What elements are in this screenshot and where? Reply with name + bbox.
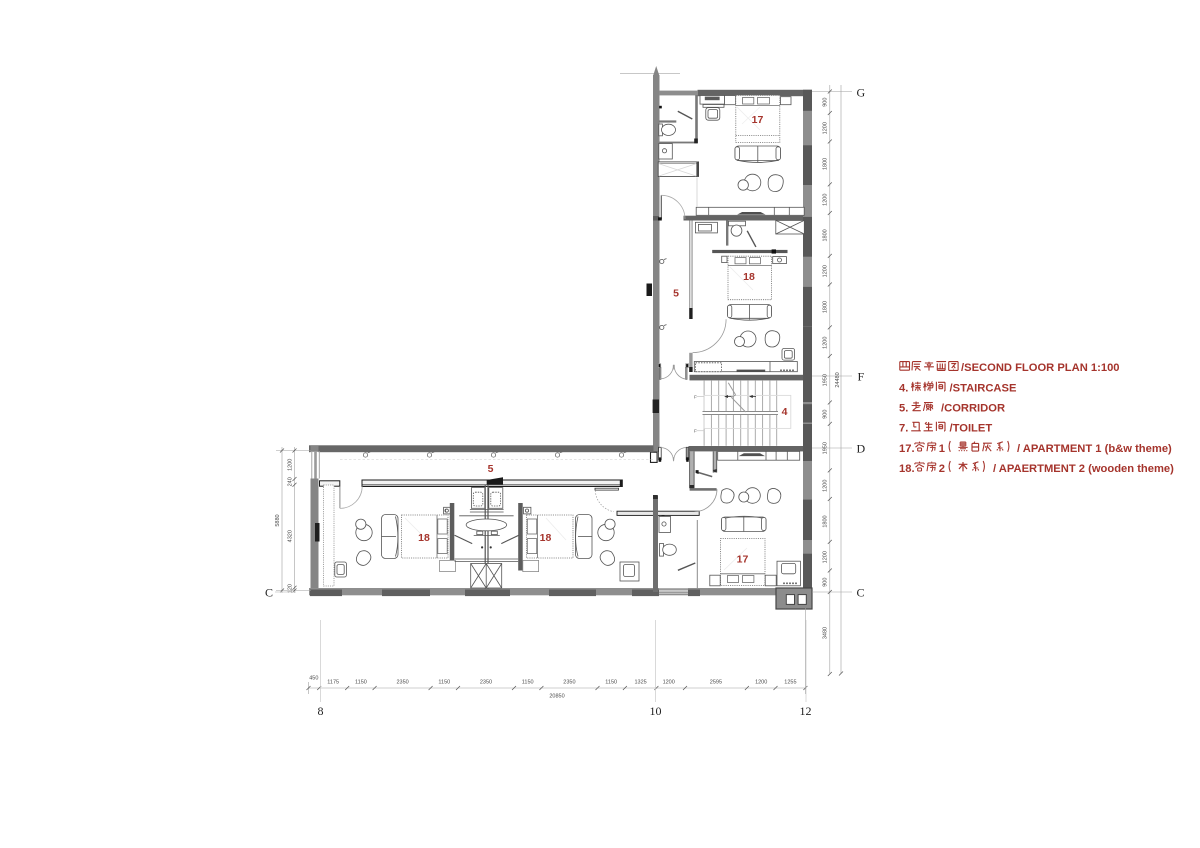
svg-text:17: 17 (752, 114, 764, 126)
svg-text:8: 8 (318, 704, 324, 718)
svg-text:1175: 1175 (327, 680, 339, 686)
svg-text:1200: 1200 (822, 265, 828, 277)
svg-text:5880: 5880 (275, 514, 281, 526)
svg-text:1200: 1200 (822, 337, 828, 349)
svg-text:900: 900 (822, 578, 828, 587)
svg-text:5: 5 (673, 288, 679, 300)
svg-text:18: 18 (540, 532, 552, 544)
svg-text:1800: 1800 (822, 301, 828, 313)
svg-text:F: F (858, 370, 865, 384)
svg-text:17.: 17. (899, 443, 915, 455)
svg-text:1950: 1950 (822, 442, 828, 454)
svg-text:2350: 2350 (480, 680, 492, 686)
svg-text:1150: 1150 (438, 680, 450, 686)
svg-text:C: C (265, 586, 273, 600)
svg-text:2595: 2595 (710, 680, 722, 686)
svg-text:18.: 18. (899, 463, 915, 475)
svg-text:5.: 5. (899, 403, 908, 415)
svg-text:1150: 1150 (522, 680, 534, 686)
svg-text:4.: 4. (899, 383, 908, 395)
svg-text:24480: 24480 (835, 372, 841, 387)
svg-text:1200: 1200 (822, 551, 828, 563)
svg-text:1800: 1800 (822, 515, 828, 527)
svg-text:1950: 1950 (822, 374, 828, 386)
svg-text:18: 18 (743, 271, 755, 283)
svg-text:18: 18 (418, 532, 430, 544)
svg-text:1325: 1325 (634, 680, 646, 686)
svg-text:/ APARTMENT 1 (b&w theme): / APARTMENT 1 (b&w theme) (1017, 443, 1172, 455)
svg-text:240: 240 (288, 477, 294, 486)
svg-text:1200: 1200 (288, 459, 294, 471)
svg-text:1: 1 (939, 443, 945, 455)
svg-text:4: 4 (782, 406, 788, 418)
svg-text:1150: 1150 (355, 680, 367, 686)
svg-text:F: F (694, 395, 697, 400)
svg-text:1200: 1200 (663, 680, 675, 686)
svg-text:900: 900 (822, 98, 828, 107)
svg-text:17: 17 (737, 554, 749, 566)
svg-text:450: 450 (309, 676, 318, 682)
svg-text:1255: 1255 (784, 680, 796, 686)
svg-text:5: 5 (488, 463, 494, 475)
svg-text:/CORRIDOR: /CORRIDOR (941, 403, 1005, 415)
svg-text:/TOILET: /TOILET (950, 423, 993, 435)
svg-text:1800: 1800 (822, 158, 828, 170)
svg-text:1800: 1800 (822, 229, 828, 241)
svg-text:/STAIRCASE: /STAIRCASE (950, 383, 1017, 395)
svg-text:7.: 7. (899, 423, 908, 435)
svg-text:1200: 1200 (822, 194, 828, 206)
svg-text:G: G (857, 86, 866, 100)
svg-text:C: C (857, 586, 865, 600)
svg-text:2350: 2350 (396, 680, 408, 686)
svg-text:10: 10 (650, 704, 662, 718)
svg-text:/ APAERTMENT 2 (wooden theme): / APAERTMENT 2 (wooden theme) (993, 463, 1174, 475)
svg-text:20850: 20850 (549, 694, 564, 700)
svg-text:1200: 1200 (822, 122, 828, 134)
svg-text:2350: 2350 (563, 680, 575, 686)
svg-text:1200: 1200 (755, 680, 767, 686)
svg-text:1200: 1200 (822, 480, 828, 492)
svg-text:2: 2 (939, 463, 945, 475)
svg-text:900: 900 (822, 410, 828, 419)
svg-text:F: F (694, 429, 697, 434)
svg-text:1150: 1150 (605, 680, 617, 686)
svg-text:3480: 3480 (822, 627, 828, 639)
svg-text:4320: 4320 (288, 530, 294, 542)
svg-text:/SECOND FLOOR PLAN 1:100: /SECOND FLOOR PLAN 1:100 (961, 362, 1120, 374)
svg-text:D: D (857, 442, 866, 456)
svg-text:12: 12 (800, 704, 812, 718)
